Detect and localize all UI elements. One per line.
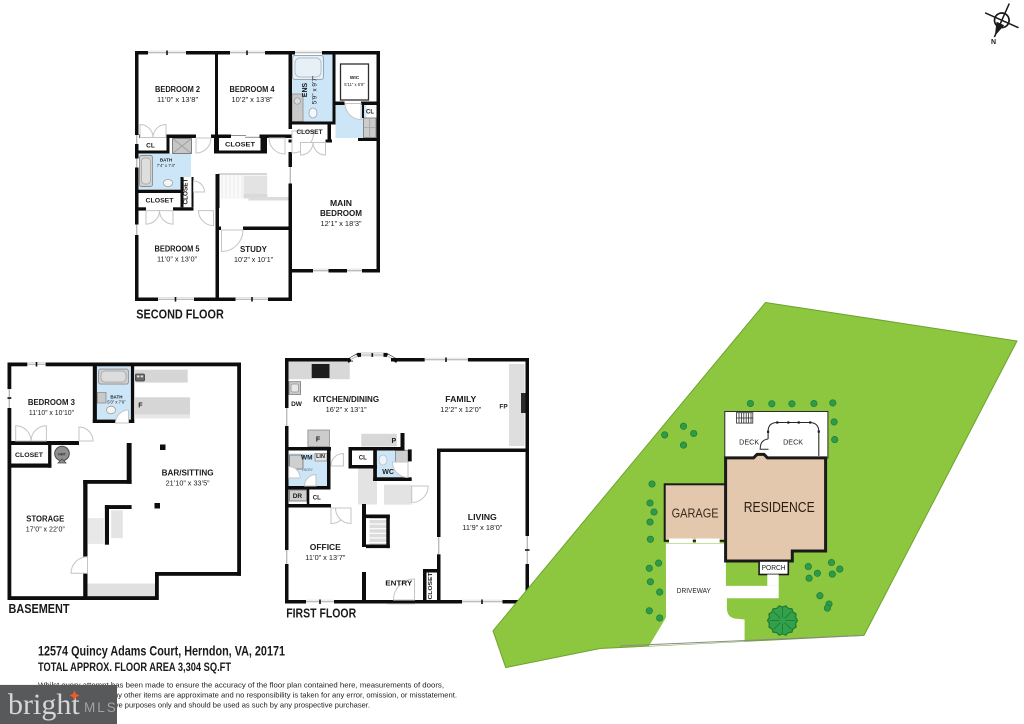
- svg-text:BASEMENT: BASEMENT: [9, 602, 70, 616]
- svg-text:BEDROOM 2: BEDROOM 2: [155, 85, 201, 94]
- svg-text:GARAGE: GARAGE: [672, 506, 719, 521]
- svg-text:CLOSET: CLOSET: [184, 178, 190, 204]
- svg-text:21’10” x 33’5”: 21’10” x 33’5”: [166, 479, 210, 488]
- svg-text:bright: bright: [8, 688, 80, 721]
- svg-text:STUDY: STUDY: [240, 245, 268, 254]
- svg-text:12’2” x 12’0”: 12’2” x 12’0”: [440, 405, 481, 414]
- svg-text:PORCH: PORCH: [762, 563, 786, 572]
- svg-text:11’9” x 18’0”: 11’9” x 18’0”: [462, 523, 502, 532]
- svg-text:BAR/SITTING: BAR/SITTING: [162, 469, 214, 478]
- svg-text:DRIVEWAY: DRIVEWAY: [677, 586, 711, 595]
- svg-text:WM: WM: [301, 455, 313, 462]
- svg-text:11’0” x 13’8”: 11’0” x 13’8”: [157, 95, 199, 104]
- svg-text:CLOSET: CLOSET: [15, 452, 43, 459]
- svg-text:12’1” x 18’3”: 12’1” x 18’3”: [321, 219, 362, 228]
- svg-text:RESIDENCE: RESIDENCE: [744, 500, 815, 516]
- svg-text:BEDROOM 3: BEDROOM 3: [28, 398, 76, 407]
- svg-text:BEDROOM: BEDROOM: [320, 209, 362, 218]
- svg-text:HWT: HWT: [58, 452, 67, 456]
- svg-text:11’10” x 10’10”: 11’10” x 10’10”: [29, 408, 74, 417]
- svg-text:CLOSET: CLOSET: [428, 572, 434, 600]
- svg-text:WC: WC: [382, 469, 394, 476]
- svg-text:LNDRY: LNDRY: [302, 468, 314, 472]
- svg-text:LIN: LIN: [316, 454, 325, 460]
- svg-text:LIVING: LIVING: [468, 513, 497, 522]
- svg-text:OFFICE: OFFICE: [310, 543, 342, 552]
- svg-text:KITCHEN/DINING: KITCHEN/DINING: [313, 395, 379, 404]
- svg-text:11’0” x 13’7”: 11’0” x 13’7”: [305, 553, 345, 562]
- svg-text:FAMILY: FAMILY: [445, 395, 477, 404]
- svg-text:WIC: WIC: [350, 75, 360, 81]
- svg-text:F: F: [316, 437, 321, 444]
- svg-text:CLOSET: CLOSET: [146, 197, 174, 204]
- svg-text:DECK: DECK: [783, 440, 803, 447]
- svg-text:F: F: [138, 403, 143, 410]
- svg-text:10’2” x 10’1”: 10’2” x 10’1”: [234, 255, 273, 264]
- svg-text:5’9” x 9’7”: 5’9” x 9’7”: [312, 76, 319, 105]
- svg-text:5’0” x 7’6”: 5’0” x 7’6”: [107, 400, 126, 405]
- svg-text:SECOND FLOOR: SECOND FLOOR: [136, 307, 224, 321]
- svg-text:CL: CL: [359, 456, 367, 462]
- svg-text:16’2” x 13’1”: 16’2” x 13’1”: [326, 405, 367, 414]
- svg-text:BEDROOM 5: BEDROOM 5: [155, 245, 201, 254]
- svg-text:BATH: BATH: [160, 158, 172, 163]
- svg-text:17’0” x 22’0”: 17’0” x 22’0”: [26, 525, 65, 534]
- svg-text:5’11” x 6’8”: 5’11” x 6’8”: [344, 82, 365, 87]
- svg-text:CLOSET: CLOSET: [225, 142, 255, 149]
- svg-text:N: N: [991, 39, 996, 46]
- svg-text:P: P: [391, 438, 396, 445]
- svg-text:CL: CL: [366, 110, 374, 116]
- svg-text:CL: CL: [146, 143, 155, 150]
- svg-text:12574 Quincy Adams Court, Hern: 12574 Quincy Adams Court, Herndon, VA, 2…: [38, 643, 285, 659]
- svg-text:DECK: DECK: [739, 440, 759, 447]
- svg-text:CL: CL: [313, 496, 321, 502]
- svg-text:DW: DW: [291, 401, 303, 408]
- svg-text:MAIN: MAIN: [330, 199, 352, 208]
- svg-text:11’0” x 13’0”: 11’0” x 13’0”: [157, 255, 197, 264]
- svg-text:FIRST FLOOR: FIRST FLOOR: [286, 606, 356, 620]
- svg-text:ENTRY: ENTRY: [385, 579, 412, 588]
- svg-text:DR: DR: [293, 493, 303, 500]
- svg-text:CLOSET: CLOSET: [297, 129, 323, 136]
- svg-text:FP: FP: [499, 404, 508, 411]
- svg-text:TOTAL APPROX. FLOOR AREA 3,304: TOTAL APPROX. FLOOR AREA 3,304 SQ.FT: [38, 662, 231, 674]
- svg-text:MLS: MLS: [84, 700, 118, 715]
- svg-text:STORAGE: STORAGE: [26, 515, 65, 524]
- svg-text:10’2” x 13’8”: 10’2” x 13’8”: [232, 95, 273, 104]
- svg-text:ENS: ENS: [302, 82, 309, 97]
- svg-text:7’4” x 7’4”: 7’4” x 7’4”: [157, 163, 176, 168]
- svg-text:BEDROOM 4: BEDROOM 4: [230, 85, 276, 94]
